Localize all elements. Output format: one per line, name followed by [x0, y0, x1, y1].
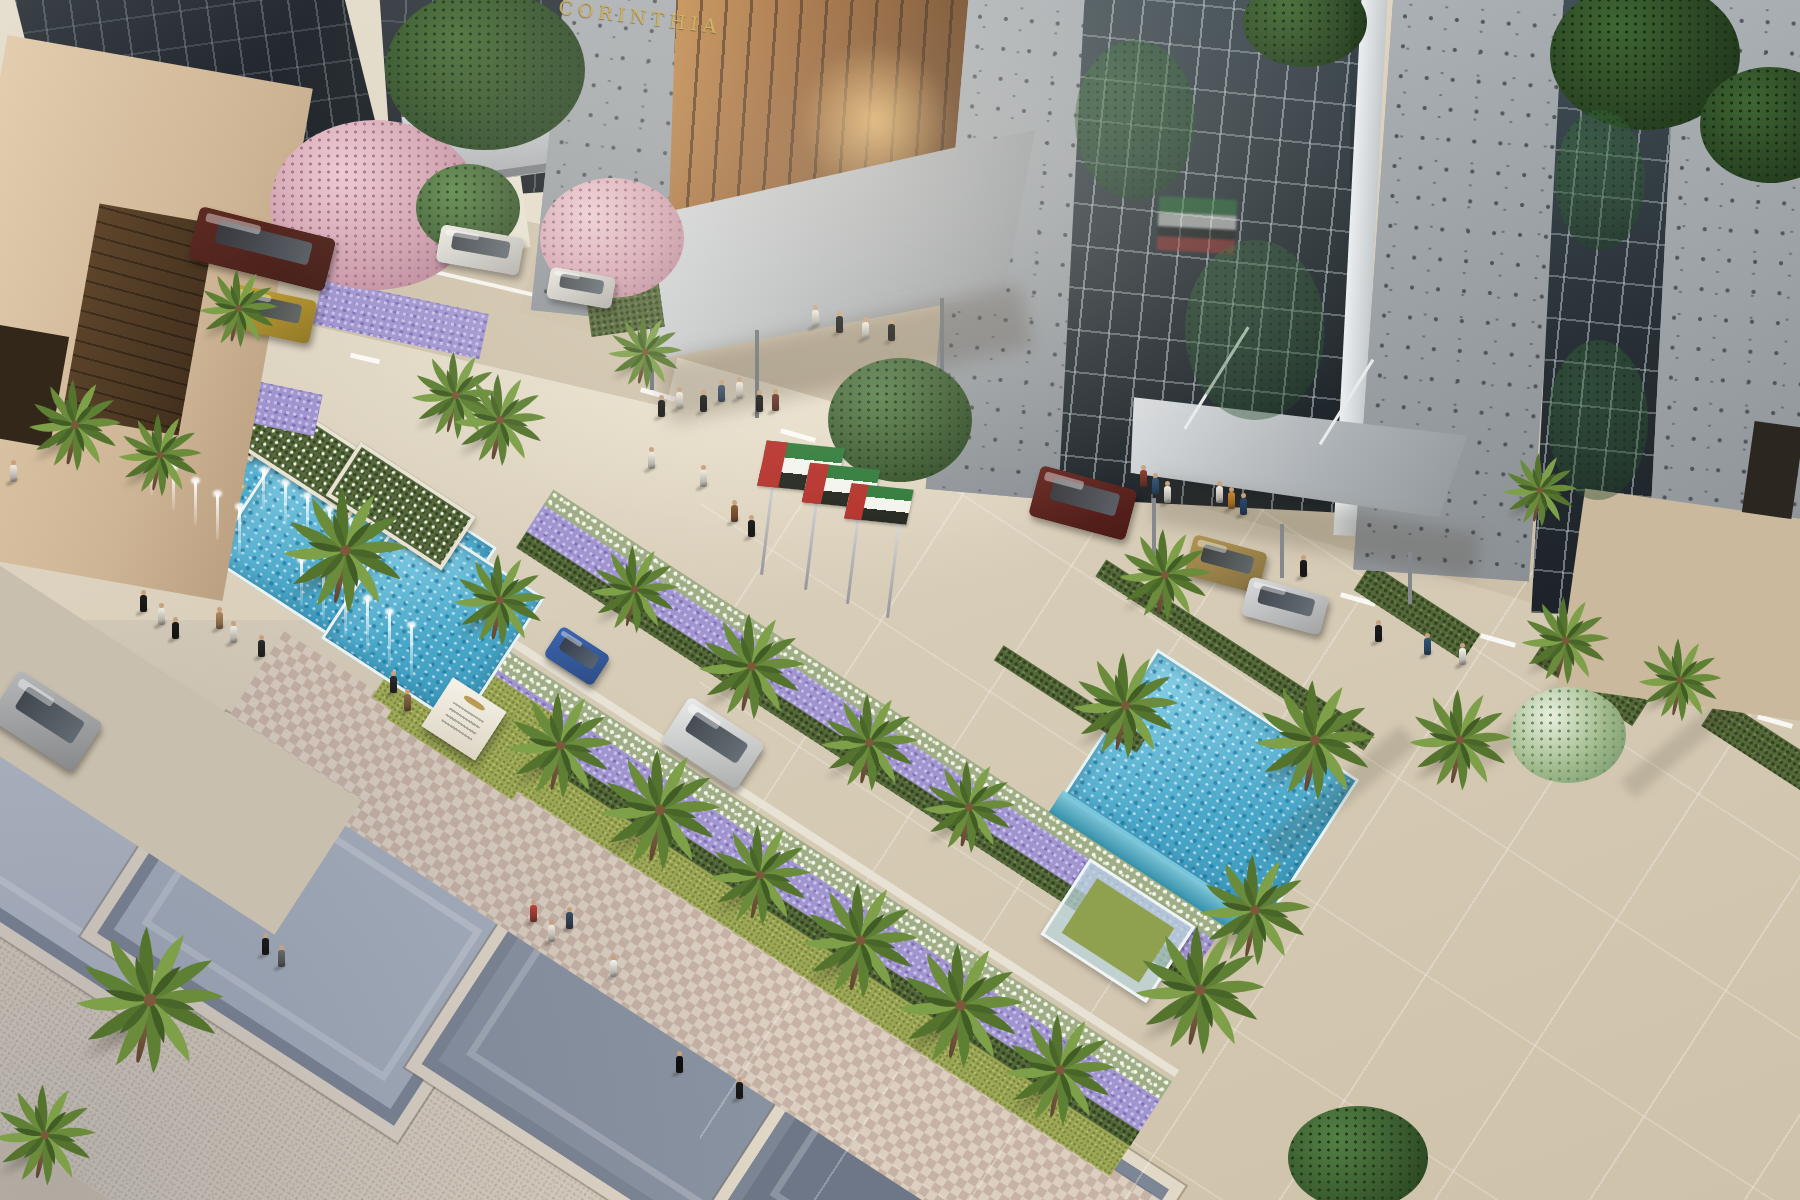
pedestrian	[658, 400, 665, 417]
canopy-post	[1280, 524, 1284, 578]
pedestrian	[836, 316, 843, 333]
palm-crown	[817, 690, 922, 795]
palm-tree	[1000, 1010, 1120, 1130]
palm-crown	[196, 266, 281, 351]
pedestrian	[756, 395, 763, 412]
pedestrian	[772, 394, 779, 411]
pedestrian	[1240, 498, 1247, 515]
palm-tree	[817, 690, 922, 795]
canopy-post	[1408, 552, 1412, 604]
palm-tree	[1500, 450, 1580, 530]
uae-flag	[844, 483, 913, 525]
pedestrian	[1375, 625, 1382, 642]
pedestrian	[1459, 648, 1466, 665]
pedestrian	[1228, 492, 1235, 509]
pedestrian	[390, 676, 397, 693]
palm-crown	[115, 410, 205, 500]
pedestrian	[736, 1082, 743, 1099]
white-flower-tree	[1510, 687, 1626, 783]
palm-tree	[1250, 675, 1380, 805]
palm-crown	[1115, 525, 1215, 625]
palm-tree	[1635, 635, 1725, 725]
pedestrian	[718, 385, 725, 402]
glass-reflection-tree	[1185, 240, 1325, 420]
pedestrian	[10, 465, 17, 482]
pedestrian	[278, 950, 285, 967]
pedestrian	[530, 905, 537, 922]
fountain-jet	[216, 494, 219, 540]
palm-tree	[450, 550, 550, 650]
pedestrian	[404, 694, 411, 711]
glass-reflection-tree	[1555, 110, 1645, 250]
pedestrian	[812, 310, 819, 327]
green-tree	[828, 358, 972, 482]
pedestrian	[1424, 638, 1431, 655]
pedestrian	[731, 505, 738, 522]
palm-crown	[450, 370, 550, 470]
palm-tree	[1130, 920, 1270, 1060]
pedestrian	[862, 322, 869, 339]
palm-crown	[919, 757, 1019, 857]
pedestrian	[610, 960, 617, 977]
palm-crown	[1000, 1010, 1120, 1130]
palm-crown	[70, 920, 230, 1080]
fountain-jet	[410, 625, 413, 677]
palm-tree	[605, 312, 685, 392]
pedestrian	[700, 470, 707, 487]
palm-tree	[196, 266, 281, 351]
pedestrian	[648, 452, 655, 469]
pedestrian	[258, 640, 265, 657]
palm-crown	[587, 542, 682, 637]
pedestrian	[1300, 560, 1307, 577]
fountain-jet	[262, 470, 265, 510]
pedestrian	[888, 324, 895, 341]
palm-crown	[1518, 593, 1613, 688]
palm-tree	[1068, 648, 1183, 763]
pedestrian	[1164, 486, 1171, 503]
pedestrian	[676, 1056, 683, 1073]
palm-tree	[587, 542, 682, 637]
palm-crown	[694, 609, 809, 724]
pedestrian	[548, 925, 555, 942]
palm-crown	[1405, 685, 1515, 795]
flag-reflection	[1157, 196, 1238, 254]
pedestrian	[700, 395, 707, 412]
palm-crown	[1250, 675, 1380, 805]
palm-tree	[1115, 525, 1215, 625]
pedestrian	[1152, 478, 1159, 495]
rendering-canvas: CORINTHIA	[0, 0, 1800, 1200]
palm-tree	[25, 375, 125, 475]
pedestrian	[1216, 486, 1223, 503]
pedestrian	[172, 622, 179, 639]
palm-tree	[1518, 593, 1613, 688]
pedestrian	[1140, 470, 1147, 487]
palm-crown	[0, 1080, 100, 1190]
pedestrian	[140, 595, 147, 612]
palm-crown	[25, 375, 125, 475]
pedestrian	[230, 626, 237, 643]
canopy-post	[940, 298, 944, 378]
palm-tree	[70, 920, 230, 1080]
palm-tree	[1405, 685, 1515, 795]
palm-crown	[450, 550, 550, 650]
fountain-jet	[388, 612, 391, 666]
palm-crown	[278, 483, 413, 618]
pedestrian	[736, 382, 743, 399]
pedestrian	[262, 938, 269, 955]
palm-crown	[1635, 635, 1725, 725]
palm-crown	[1068, 648, 1183, 763]
glass-reflection-tree	[1075, 40, 1195, 200]
palm-crown	[605, 312, 685, 392]
palm-crown	[1130, 920, 1270, 1060]
pedestrian	[748, 520, 755, 537]
pedestrian	[566, 912, 573, 929]
fountain-jet	[238, 507, 241, 555]
palm-tree	[115, 410, 205, 500]
palm-tree	[694, 609, 809, 724]
pedestrian	[216, 612, 223, 629]
pedestrian	[676, 392, 683, 409]
palm-tree	[278, 483, 413, 618]
palm-tree	[919, 757, 1019, 857]
palm-tree	[0, 1080, 100, 1190]
pedestrian	[158, 608, 165, 625]
palm-crown	[1500, 450, 1580, 530]
shrub	[1288, 1106, 1428, 1200]
palm-tree	[450, 370, 550, 470]
